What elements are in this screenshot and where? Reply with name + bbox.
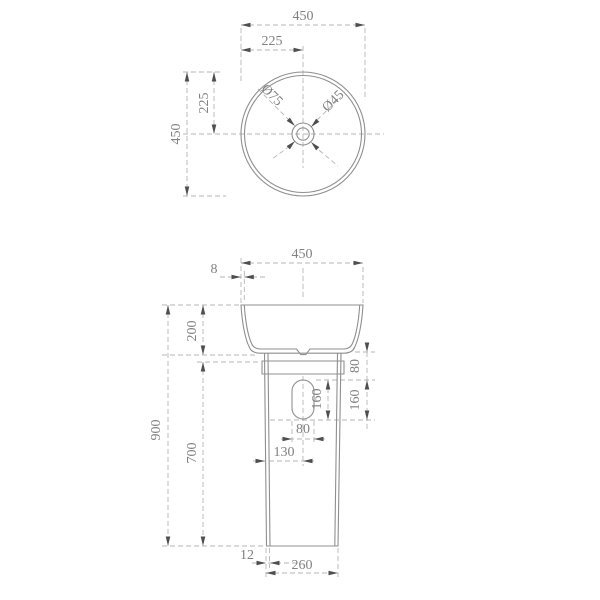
dim-label-slot-center-offset: 130 [274,445,295,460]
dim-label-pedestal-height: 700 [185,443,200,464]
dim-label-pedestal-width: 260 [292,558,313,573]
dim-label-rim-thickness: 8 [211,262,218,277]
drawing-canvas: 450 225 450 225 Ø75 Ø45 [0,0,600,600]
mounting-bracket [262,361,344,374]
dim-label-slot-height-right: 160 [348,390,363,411]
dim-label-wall-thickness: 12 [240,548,254,563]
dim-label-front-basin-width: 450 [292,247,313,262]
dim-label-slot-width: 80 [296,422,310,437]
dim-label-topview-half-depth: 225 [197,93,212,114]
basin-front-outline [241,305,363,355]
top-view-group: 450 225 450 225 Ø75 Ø45 [169,9,384,196]
dim-label-topview-half-width: 225 [262,34,283,49]
dimension-drawing-svg: 450 225 450 225 Ø75 Ø45 [0,0,600,600]
dim-label-basin-slot-gap: 80 [348,359,363,373]
dim-label-topview-width: 450 [293,9,314,24]
dim-label-basin-height: 200 [185,321,200,342]
front-view-group: 450 8 200 900 700 80 160 160 80 130 12 2… [149,247,375,580]
dim-label-topview-depth: 450 [169,124,184,145]
dim-label-overall-height: 900 [149,420,164,441]
dim-label-slot-height-inner: 160 [310,389,325,410]
dim-label-drain-od: Ø75 [258,82,286,110]
